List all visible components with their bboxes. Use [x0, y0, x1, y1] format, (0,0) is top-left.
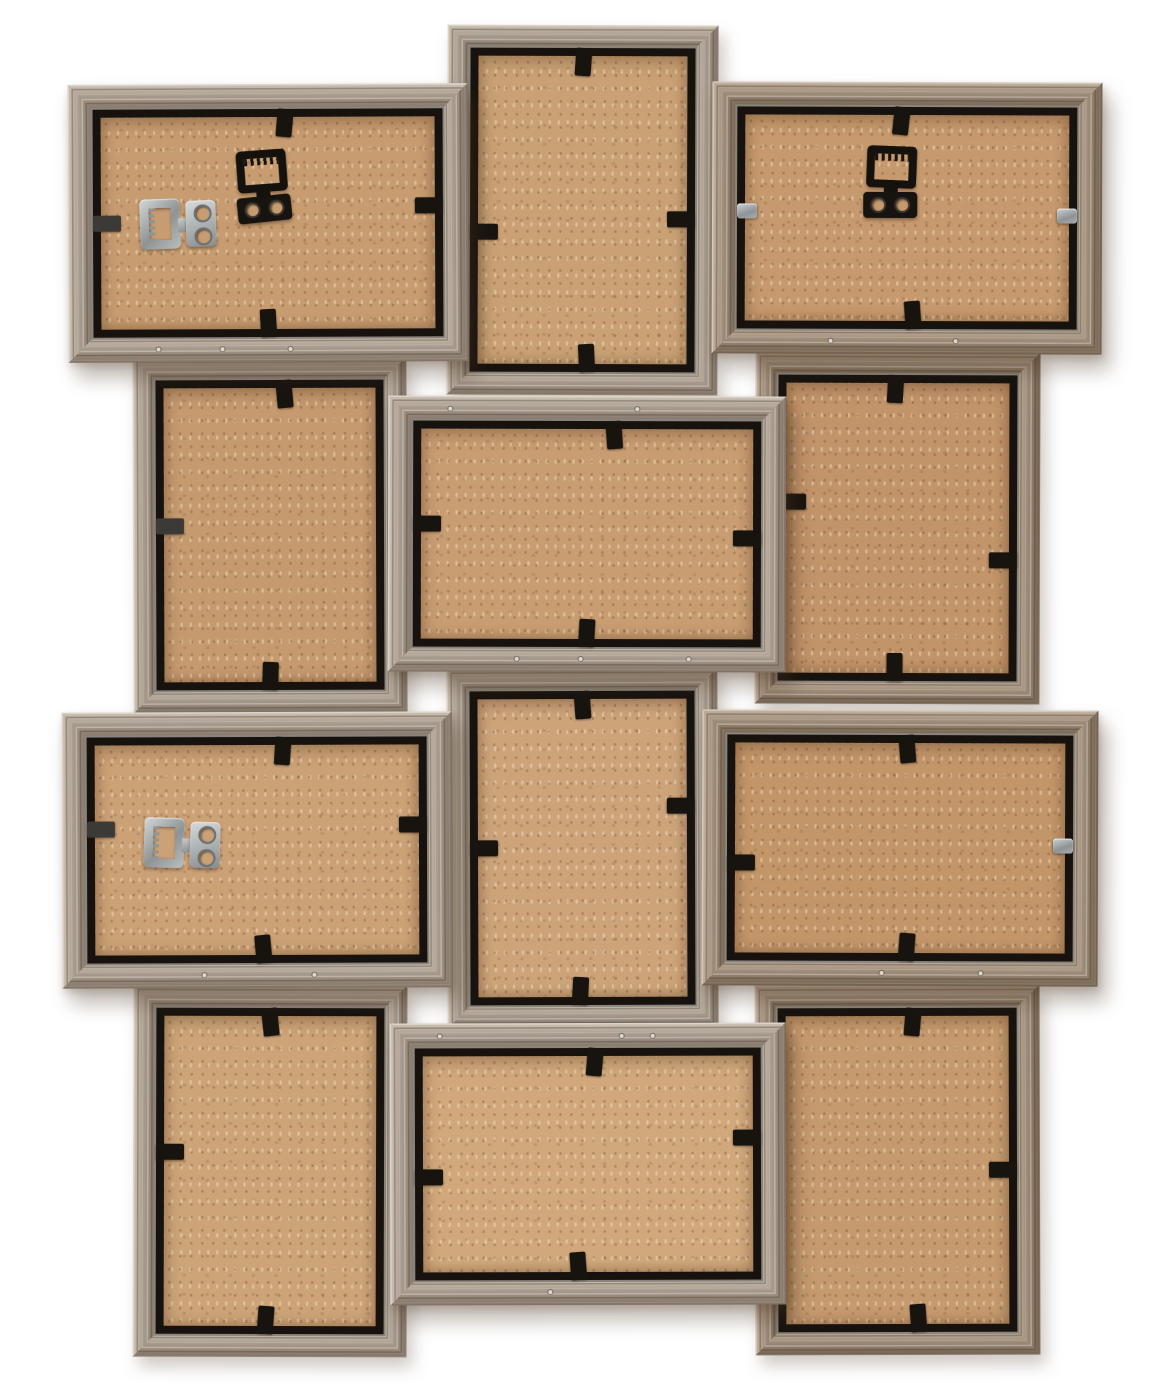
frame-rail-bottom — [388, 645, 786, 672]
hanger-loop — [235, 148, 288, 194]
retainer-tab — [261, 1007, 280, 1036]
hanger-screw-hole — [198, 826, 217, 845]
hanger-screw-plate — [863, 192, 917, 218]
assembly-screw — [448, 407, 452, 411]
hanger-screw-plate — [189, 822, 220, 869]
retainer-tab — [891, 106, 910, 136]
mdf-backing-board — [421, 429, 754, 640]
retainer-tab — [573, 690, 591, 719]
retainer-tab — [260, 309, 278, 338]
retainer-tab — [255, 934, 273, 963]
hanger-screw-hole — [194, 227, 213, 246]
hanger-screw-hole — [197, 849, 216, 868]
retainer-tab — [275, 108, 293, 137]
sawtooth-teeth — [153, 826, 160, 858]
frame-back-landscape-bottom-center — [390, 1022, 787, 1305]
collage-frame-back-photo — [0, 0, 1170, 1400]
frame-back-landscape-top-right — [712, 81, 1103, 354]
assembly-screw — [635, 407, 639, 411]
retainer-tab — [989, 1162, 1017, 1178]
mdf-backing-board — [164, 1016, 377, 1327]
retainer-tab — [733, 531, 761, 547]
retainer-tab — [415, 1169, 443, 1185]
assembly-screw — [312, 973, 316, 977]
frame-back-landscape-lower-left — [62, 711, 453, 988]
sawtooth-teeth — [875, 153, 909, 161]
frame-rail-right — [1072, 711, 1099, 987]
retainer-tab — [667, 798, 695, 814]
frame-rail-right — [760, 1022, 787, 1304]
sawtooth-hanger-black — [863, 145, 920, 219]
retainer-tab — [733, 1130, 761, 1146]
retainer-tab — [415, 197, 443, 213]
retainer-tab — [574, 47, 592, 76]
frame-back-portrait-top-center — [446, 25, 718, 396]
mdf-backing-board — [786, 1016, 1010, 1325]
retainer-tab — [274, 736, 292, 765]
hanger-screw-plate — [185, 200, 217, 247]
retainer-tab — [897, 932, 915, 961]
retainer-tab — [578, 619, 596, 648]
retainer-tab — [399, 816, 427, 832]
frame-rail-right — [1076, 83, 1103, 355]
retainer-tab — [572, 977, 589, 1006]
frame-rail-right — [426, 711, 453, 987]
mdf-backing-board — [477, 56, 687, 365]
assembly-screw — [619, 1034, 623, 1038]
frame-back-landscape-lower-right — [702, 709, 1099, 986]
hanger-screw-hole — [870, 197, 886, 213]
metal-retainer-clip — [1057, 209, 1077, 224]
retainer-tab — [275, 379, 293, 408]
frame-rail-bottom — [755, 1331, 1040, 1356]
frame-back-portrait-mid-right — [754, 352, 1040, 705]
frame-rail-bottom — [133, 1333, 407, 1358]
hanger-screw-hole — [193, 204, 212, 223]
retainer-tab — [909, 1303, 927, 1332]
frame-back-landscape-middle-center — [388, 395, 787, 672]
mdf-backing-board — [735, 742, 1066, 953]
frame-back-landscape-top-left — [67, 83, 468, 363]
hanger-screw-hole — [244, 201, 262, 219]
retainer-tab — [156, 518, 184, 534]
retainer-tab — [577, 344, 594, 373]
hanger-loop — [139, 198, 181, 250]
assembly-screw — [437, 1034, 441, 1038]
sawtooth-hanger-black — [233, 148, 292, 224]
retainer-tab — [904, 301, 922, 330]
frame-rail-right — [760, 396, 787, 672]
hanger-loop-opening — [148, 208, 171, 241]
retainer-tab — [727, 854, 755, 870]
retainer-tab — [887, 653, 903, 681]
retainer-tab — [605, 421, 623, 450]
mdf-backing-board — [477, 699, 687, 998]
hanger-loop — [866, 145, 918, 189]
retainer-tab — [413, 515, 441, 531]
retainer-tab — [904, 1007, 922, 1036]
sawtooth-hanger-metal — [139, 195, 217, 254]
hanger-screw-plate — [236, 193, 293, 225]
assembly-screw — [686, 657, 690, 661]
retainer-tab — [470, 840, 498, 856]
frame-back-portrait-bottom-left — [133, 985, 408, 1358]
assembly-screw — [579, 657, 583, 661]
retainer-tab — [569, 1251, 587, 1280]
frame-back-portrait-lower-center — [446, 668, 718, 1029]
hanger-screw-hole — [268, 199, 286, 217]
hanger-loop-opening — [153, 826, 176, 859]
frame-rail-right — [441, 83, 468, 361]
sawtooth-teeth — [244, 157, 278, 167]
mdf-backing-board — [423, 1056, 754, 1273]
assembly-screw — [829, 339, 833, 343]
frame-back-portrait-mid-left — [132, 357, 407, 714]
sawtooth-teeth — [148, 208, 155, 240]
metal-retainer-clip — [1053, 839, 1073, 854]
retainer-tab — [156, 1144, 184, 1160]
frame-back-portrait-bottom-right — [755, 985, 1041, 1356]
sawtooth-hanger-metal — [143, 815, 221, 873]
hanger-loop — [143, 817, 185, 868]
retainer-tab — [989, 552, 1017, 568]
retainer-tab — [256, 1305, 274, 1334]
retainer-tab — [585, 1047, 603, 1076]
metal-retainer-clip — [737, 204, 757, 219]
assembly-screw — [953, 339, 957, 343]
hanger-screw-hole — [894, 197, 910, 213]
assembly-screw — [157, 347, 161, 351]
retainer-tab — [887, 375, 905, 404]
retainer-tab — [470, 223, 498, 239]
mdf-backing-board — [785, 383, 1009, 674]
retainer-tab — [87, 821, 115, 837]
retainer-tab — [262, 662, 279, 690]
retainer-tab — [93, 216, 121, 232]
retainer-tab — [667, 212, 695, 228]
assembly-screw — [221, 347, 225, 351]
assembly-screw — [289, 347, 293, 351]
retainer-tab — [898, 734, 916, 763]
mdf-backing-board — [163, 388, 376, 683]
frame-rail-bottom — [390, 1278, 786, 1305]
